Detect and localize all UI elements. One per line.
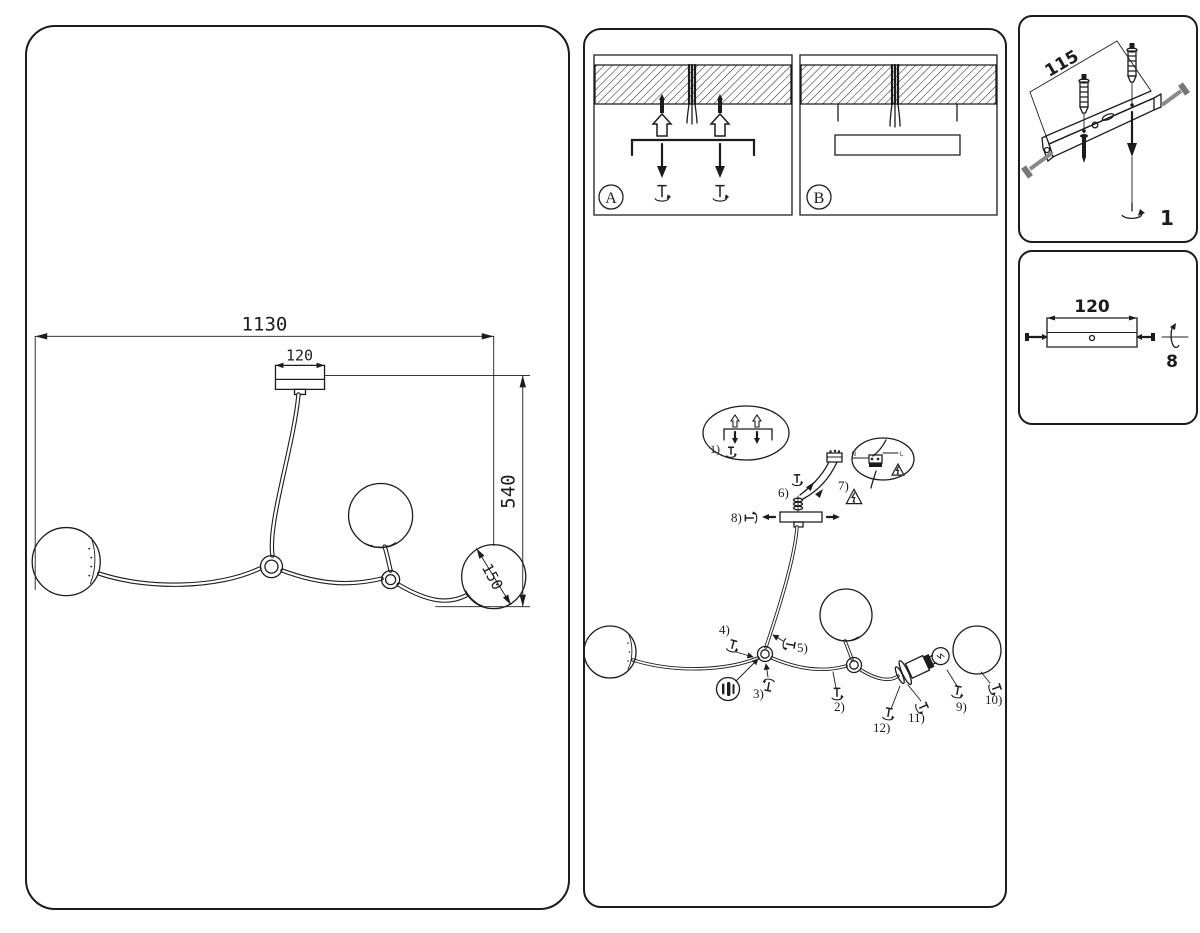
step2-label: 2) bbox=[834, 699, 845, 714]
installation-panel: A B bbox=[583, 28, 1007, 908]
step8-label: 8) bbox=[731, 510, 742, 525]
step6-label: 6) bbox=[778, 485, 789, 500]
dim-canopy-width-value: 120 bbox=[286, 346, 313, 364]
dimension-drawing-panel: 1130 120 540 bbox=[25, 25, 570, 910]
bracket-detail-drawing: 115 bbox=[1020, 17, 1196, 241]
mounting-bracket-3d bbox=[1042, 91, 1161, 161]
canopy-step-number: 8 bbox=[1166, 352, 1178, 372]
variant-b-label: B bbox=[814, 190, 825, 207]
screw-turn-icon bbox=[727, 447, 738, 457]
ceiling-wires-b bbox=[890, 65, 900, 127]
step12-label: 12) bbox=[873, 720, 890, 735]
step4-label: 4) bbox=[719, 622, 730, 637]
lamp-socket-assembly bbox=[892, 641, 954, 688]
variant-b-box: B bbox=[800, 55, 997, 215]
dim-shade-diameter: 150 bbox=[474, 547, 513, 606]
dim-shade-diameter-value: 150 bbox=[478, 561, 507, 593]
screw-turn-icon bbox=[726, 639, 740, 653]
screw-down-arrows-a bbox=[655, 144, 729, 201]
screw-turn-icon bbox=[792, 475, 803, 486]
wall-anchor-icon bbox=[1079, 43, 1137, 113]
canopy-assembly: 8) bbox=[731, 496, 840, 527]
screw-turn-icon bbox=[713, 186, 729, 201]
ceiling-wires-a bbox=[687, 65, 697, 124]
wire-live-label: L bbox=[900, 452, 904, 458]
step-callouts: 4) 5) 3) 2) 12) bbox=[717, 622, 1003, 735]
screw-turn-icon bbox=[782, 638, 795, 652]
side-screw-left-icon bbox=[1025, 333, 1048, 341]
canopy-cover-b bbox=[835, 135, 960, 155]
side-screw-right-icon bbox=[1136, 333, 1155, 341]
canopy-drawing: 120 bbox=[275, 346, 324, 394]
step5-label: 5) bbox=[797, 640, 808, 655]
canopy-detail-drawing: 120 8 bbox=[1020, 252, 1196, 423]
bracket-step-number: 1 bbox=[1160, 206, 1174, 230]
dim-total-width: 1130 bbox=[35, 313, 494, 589]
variant-a-box: A bbox=[594, 55, 792, 215]
screw-turn-icon bbox=[1122, 203, 1145, 218]
step1-label: 1) bbox=[710, 442, 720, 456]
screw-turn-icon bbox=[745, 511, 756, 523]
step9-label: 9) bbox=[956, 699, 967, 714]
installation-diagram: A B bbox=[585, 30, 1005, 906]
dim-total-width-value: 1130 bbox=[242, 313, 288, 335]
fixture-dimension-drawing: 1130 120 540 bbox=[27, 27, 568, 908]
fixture-arms bbox=[633, 527, 898, 679]
side-screws-gray bbox=[1021, 82, 1190, 178]
hazard-icon bbox=[892, 464, 904, 475]
step1-detail: 1) bbox=[703, 406, 789, 460]
variant-b-badge: B bbox=[807, 185, 831, 209]
canopy-bracket bbox=[1047, 316, 1137, 348]
variant-a-label: A bbox=[605, 190, 617, 207]
wiring-assembly: 6) 7) N L bbox=[778, 438, 914, 504]
wire-neutral-label: N bbox=[852, 452, 856, 458]
dim-bracket-spacing-value: 115 bbox=[1042, 46, 1083, 81]
dim-height-value: 540 bbox=[498, 474, 520, 508]
step7-label: 7) bbox=[838, 478, 849, 493]
terminal-detail: N L bbox=[852, 438, 914, 488]
screw-turn-icon bbox=[882, 708, 896, 721]
canopy-detail-panel: 120 8 bbox=[1018, 250, 1198, 425]
bracket-detail-panel: 115 bbox=[1018, 15, 1198, 243]
dim-canopy-bracket-value: 120 bbox=[1074, 297, 1110, 317]
screw-turn-icon bbox=[951, 686, 965, 699]
screw-turn-icon bbox=[655, 186, 671, 201]
screw-turn-icon bbox=[1162, 323, 1188, 348]
step3-label: 3) bbox=[753, 686, 764, 701]
mounting-bracket-a bbox=[632, 140, 754, 155]
variant-a-badge: A bbox=[599, 185, 623, 209]
instruction-sheet: 1130 120 540 bbox=[0, 0, 1200, 933]
